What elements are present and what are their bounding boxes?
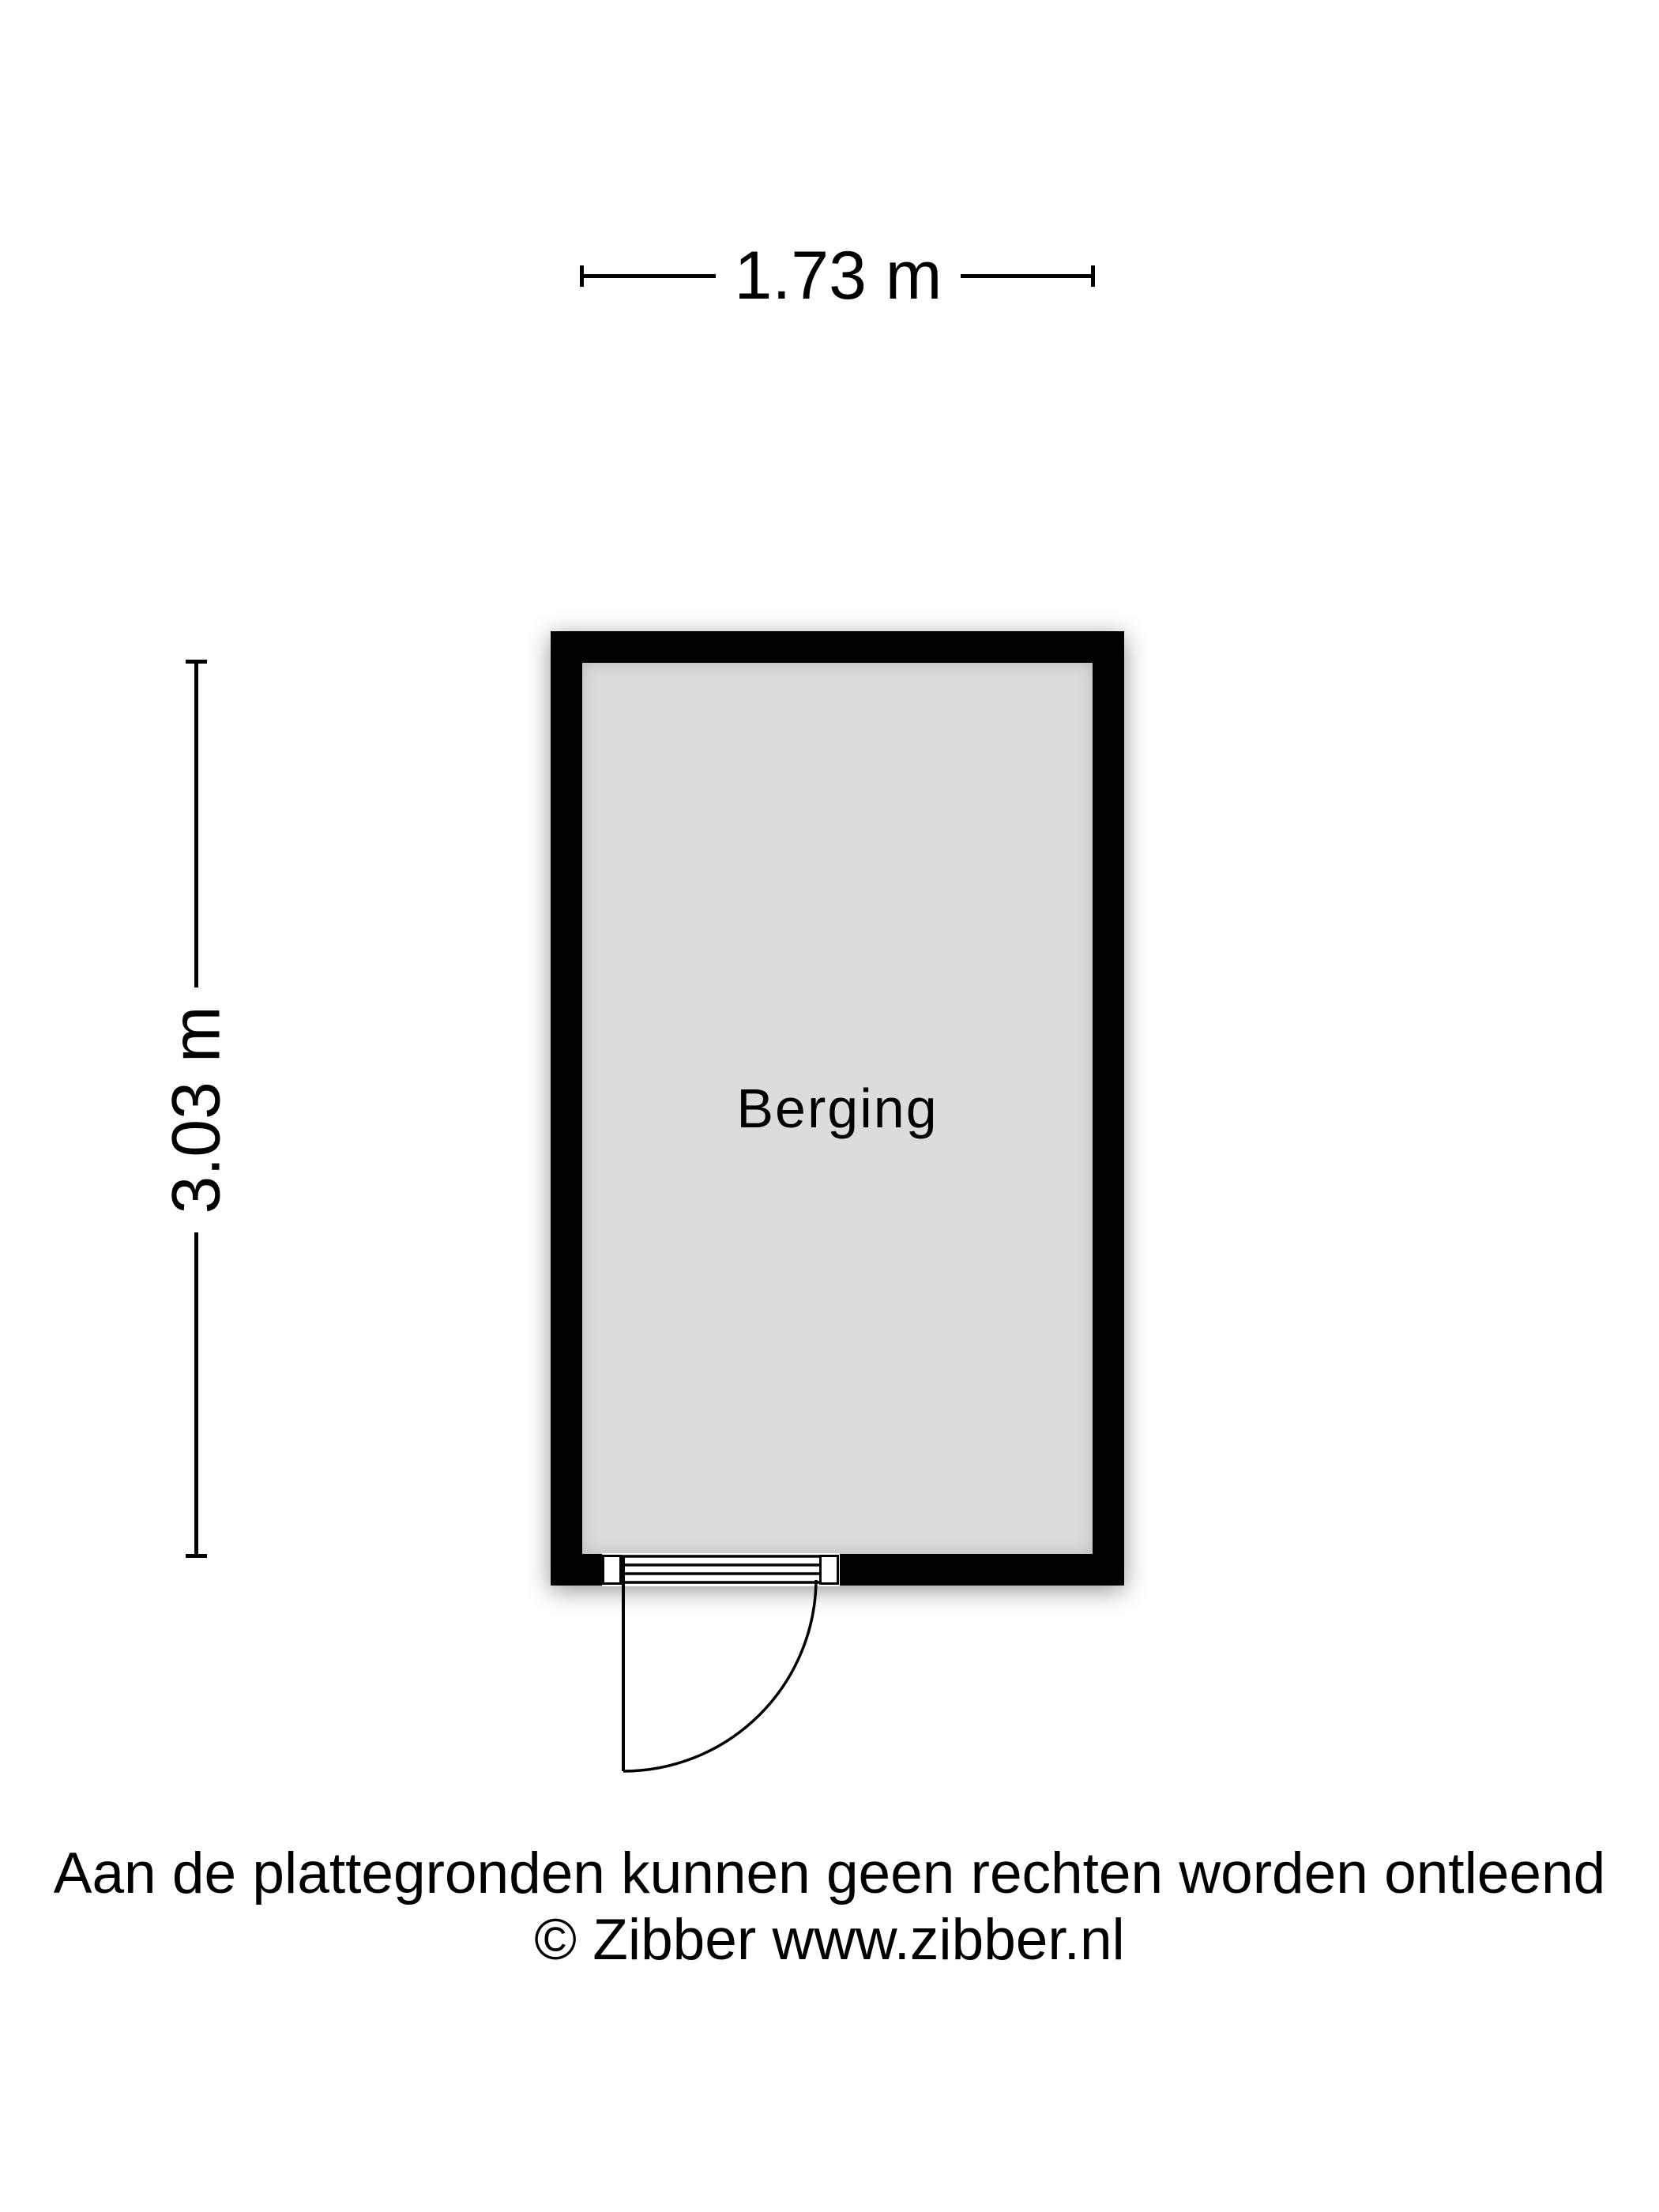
footer-copyright: © Zibber www.zibber.nl	[0, 1907, 1659, 1973]
door-left-jamb	[604, 1556, 621, 1584]
room-floor: Berging	[582, 663, 1093, 1554]
width-dimension-left-line	[581, 274, 716, 278]
width-dimension-label: 1.73 m	[735, 242, 942, 310]
footer: Aan de plattegronden kunnen geen rechten…	[0, 1841, 1659, 1973]
width-dimension-right-tick	[1091, 265, 1095, 287]
door-right-jamb	[821, 1556, 838, 1584]
door-symbol	[553, 1525, 901, 1809]
room-label: Berging	[736, 1081, 938, 1136]
width-dimension-label-wrap: 1.73 m	[716, 197, 961, 355]
height-dimension-label-wrap: 3.03 m	[38, 991, 354, 1228]
door-swing-arc	[623, 1580, 816, 1771]
height-dimension-label: 3.03 m	[162, 1006, 230, 1214]
height-dimension-bottom-tick	[186, 1554, 207, 1558]
height-dimension-bottom-line	[194, 1232, 198, 1556]
room-walls: Berging	[551, 631, 1124, 1586]
width-dimension-right-line	[961, 274, 1093, 278]
footer-disclaimer: Aan de plattegronden kunnen geen rechten…	[0, 1841, 1659, 1907]
floorplan-page: { "dimensions": { "width": { "label": "1…	[0, 0, 1659, 2212]
height-dimension-top-line	[194, 661, 198, 987]
